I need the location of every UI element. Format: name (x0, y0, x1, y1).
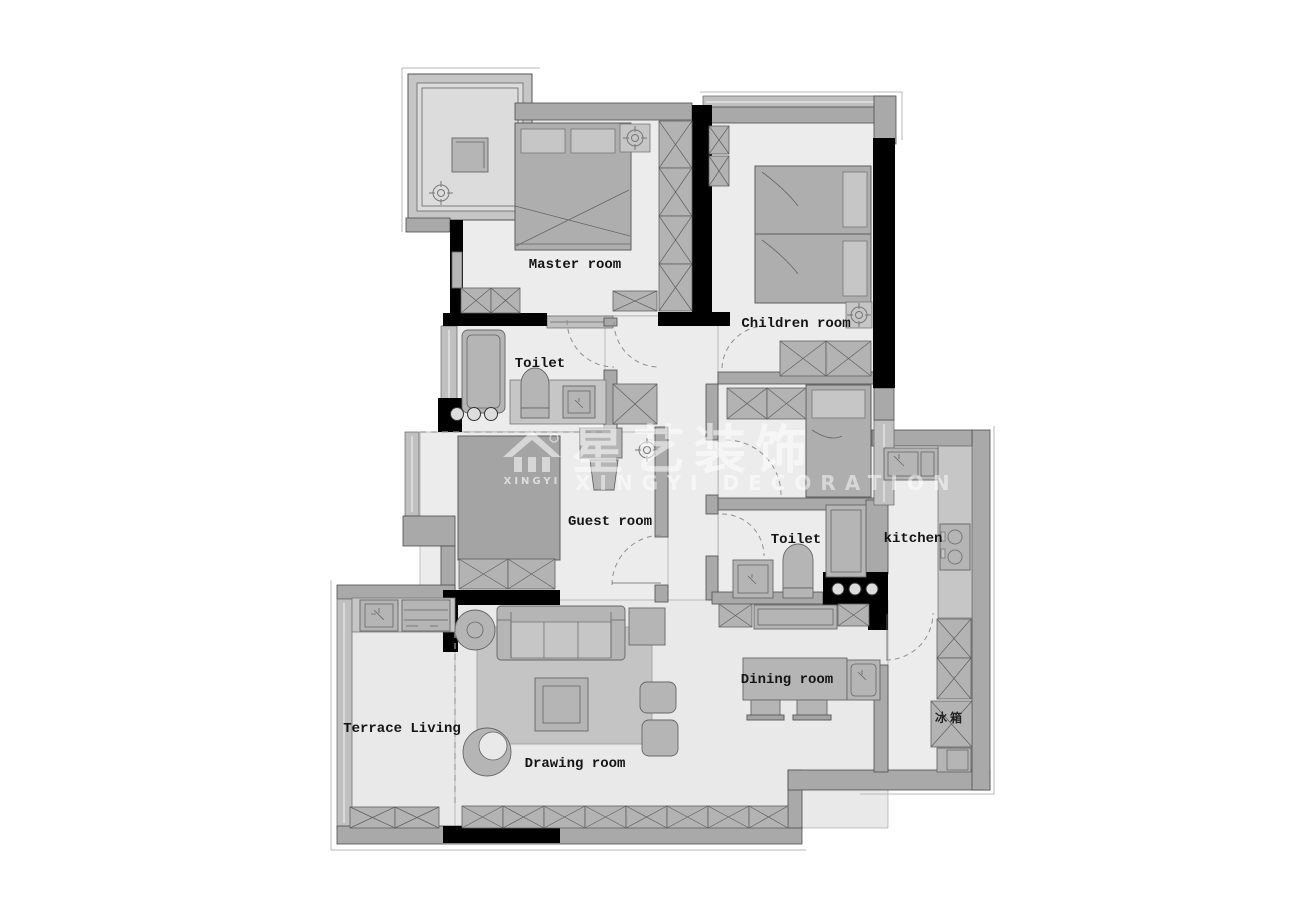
master-pillow-left (521, 129, 565, 153)
toilet-lower-wc (783, 544, 813, 588)
toilet-upper-wc-tank (521, 408, 549, 418)
balcony-ledge (406, 218, 450, 232)
drawing-room-label: Drawing room (525, 756, 626, 772)
toilet-upper-label: Toilet (515, 356, 565, 372)
dining-room-label: Dining room (741, 672, 833, 688)
bathtub (462, 330, 505, 413)
floor-fan (455, 610, 495, 650)
terrace-living (352, 598, 455, 632)
side-table (629, 608, 665, 645)
stove (940, 524, 970, 570)
shower-column (826, 505, 866, 577)
island-sink-unit (847, 660, 880, 700)
small-bed-pillow (812, 390, 865, 418)
dining-chair-base-2 (793, 715, 831, 720)
sofa (497, 606, 625, 660)
children-room-label: Children room (741, 316, 850, 332)
master-room-label: Master room (529, 257, 621, 273)
terrace-label: Terrace Living (343, 721, 461, 737)
children-pillow-2 (843, 241, 867, 296)
pouf-2 (642, 720, 678, 756)
guest-room-label: Guest room (568, 514, 652, 530)
pouf-1 (640, 682, 676, 713)
balcony-chair (452, 138, 488, 172)
toilet-upper-wc (521, 368, 549, 408)
master-dresser (452, 252, 462, 288)
fridge-label: 冰箱 (935, 710, 965, 725)
terrace-floor (350, 598, 455, 828)
watermark-logo-text: XINGYI (504, 476, 561, 487)
floor-plan-page: Master room Children room Toilet Guest r… (0, 0, 1296, 902)
dining-chair-base-1 (747, 715, 784, 720)
watermark-brand-en: XINGYI DECORATION (575, 471, 959, 495)
floor-plan-drawing: Master room Children room Toilet Guest r… (0, 0, 1296, 902)
master-pillow-right (571, 129, 615, 153)
toilet-lower-wc-tank (783, 588, 813, 598)
toilet-lower-label: Toilet (771, 532, 821, 548)
dining-chair-2 (797, 700, 827, 715)
dining-chair-1 (751, 700, 780, 715)
toilet-lower-sink (733, 560, 773, 598)
fan-armchair (463, 728, 511, 776)
kitchen-label: kitchen (884, 531, 943, 547)
tv-console (754, 605, 837, 629)
children-pillow-1 (843, 172, 867, 227)
kitchen-lower-cabinet (937, 748, 971, 772)
master-balcony (406, 74, 532, 232)
